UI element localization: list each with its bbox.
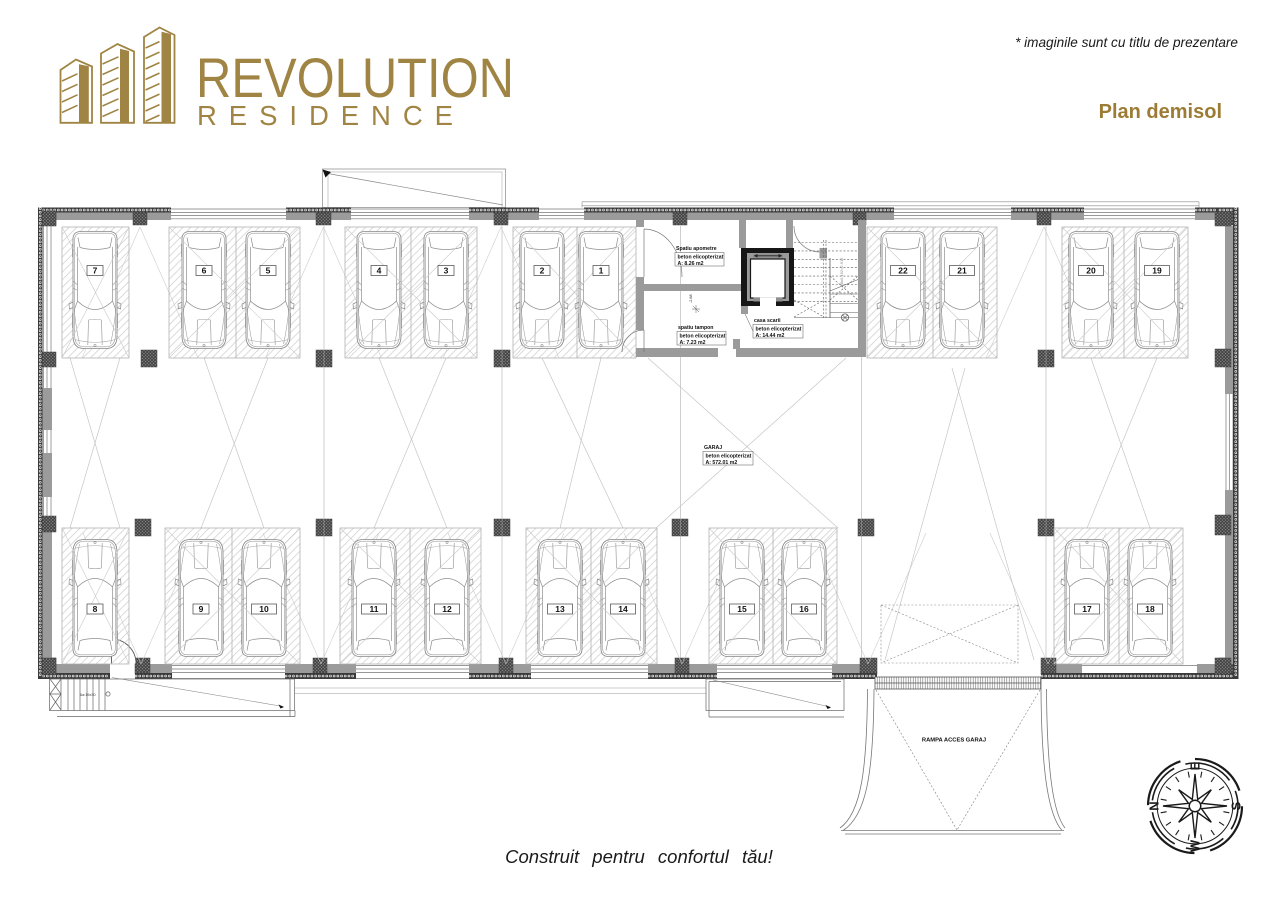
svg-text:4: 4 (377, 266, 382, 276)
svg-text:16: 16 (799, 604, 809, 614)
svg-text:7: 7 (93, 266, 98, 276)
svg-text:beton elicopterizat: beton elicopterizat (706, 454, 752, 460)
svg-text:RESIDENCE: RESIDENCE (197, 100, 453, 131)
svg-text:Construit pentru confortul tău: Construit pentru confortul tău! (505, 846, 773, 867)
svg-text:17: 17 (1082, 604, 1092, 614)
svg-text:1: 1 (599, 266, 604, 276)
svg-text:A: 7.23 m2: A: 7.23 m2 (680, 340, 706, 346)
svg-text:spatiu tampon: spatiu tampon (678, 325, 713, 331)
svg-text:RAMPA ACCES GARAJ: RAMPA ACCES GARAJ (922, 738, 986, 744)
svg-text:A: 572.01 m2: A: 572.01 m2 (706, 460, 738, 466)
svg-text:6: 6 (202, 266, 207, 276)
svg-text:3: 3 (444, 266, 449, 276)
svg-text:21: 21 (957, 266, 967, 276)
svg-text:casa scarii: casa scarii (754, 318, 781, 324)
svg-text:W: W (1188, 839, 1203, 852)
svg-text:Plan demisol: Plan demisol (1099, 101, 1222, 123)
svg-text:beton elicopterizat: beton elicopterizat (756, 327, 802, 333)
svg-text:Spatiu apometre: Spatiu apometre (676, 246, 717, 252)
svg-text:18: 18 (1145, 604, 1155, 614)
svg-text:11: 11 (370, 604, 379, 614)
svg-text:10: 10 (259, 604, 269, 614)
svg-text:13: 13 (555, 604, 565, 614)
svg-text:2: 2 (540, 266, 545, 276)
svg-text:A: 8.26 m2: A: 8.26 m2 (678, 261, 704, 267)
svg-text:5: 5 (266, 266, 271, 276)
svg-text:A: 14.44 m2: A: 14.44 m2 (756, 333, 785, 339)
svg-text:12: 12 (442, 604, 452, 614)
svg-text:15: 15 (737, 604, 747, 614)
svg-text:20: 20 (1086, 266, 1096, 276)
svg-text:19: 19 (1152, 266, 1162, 276)
svg-text:S: S (1229, 801, 1244, 810)
svg-text:9: 9 (199, 604, 204, 614)
svg-text:6a:15x30: 6a:15x30 (80, 693, 96, 697)
svg-text:* imaginile sunt cu titlu de p: * imaginile sunt cu titlu de prezentare (1015, 35, 1238, 50)
svg-text:N: N (1147, 801, 1162, 810)
svg-text:GARAJ: GARAJ (704, 445, 722, 451)
svg-text:-2.88: -2.88 (689, 294, 693, 303)
svg-text:beton elicopterizat: beton elicopterizat (680, 334, 726, 340)
svg-text:14: 14 (618, 604, 628, 614)
svg-text:beton elicopterizat: beton elicopterizat (678, 255, 724, 261)
svg-text:8: 8 (93, 604, 98, 614)
svg-text:18x0.162=2.915: 18x0.162=2.915 (839, 257, 844, 287)
svg-text:22: 22 (898, 266, 908, 276)
svg-text:E: E (1188, 761, 1203, 770)
